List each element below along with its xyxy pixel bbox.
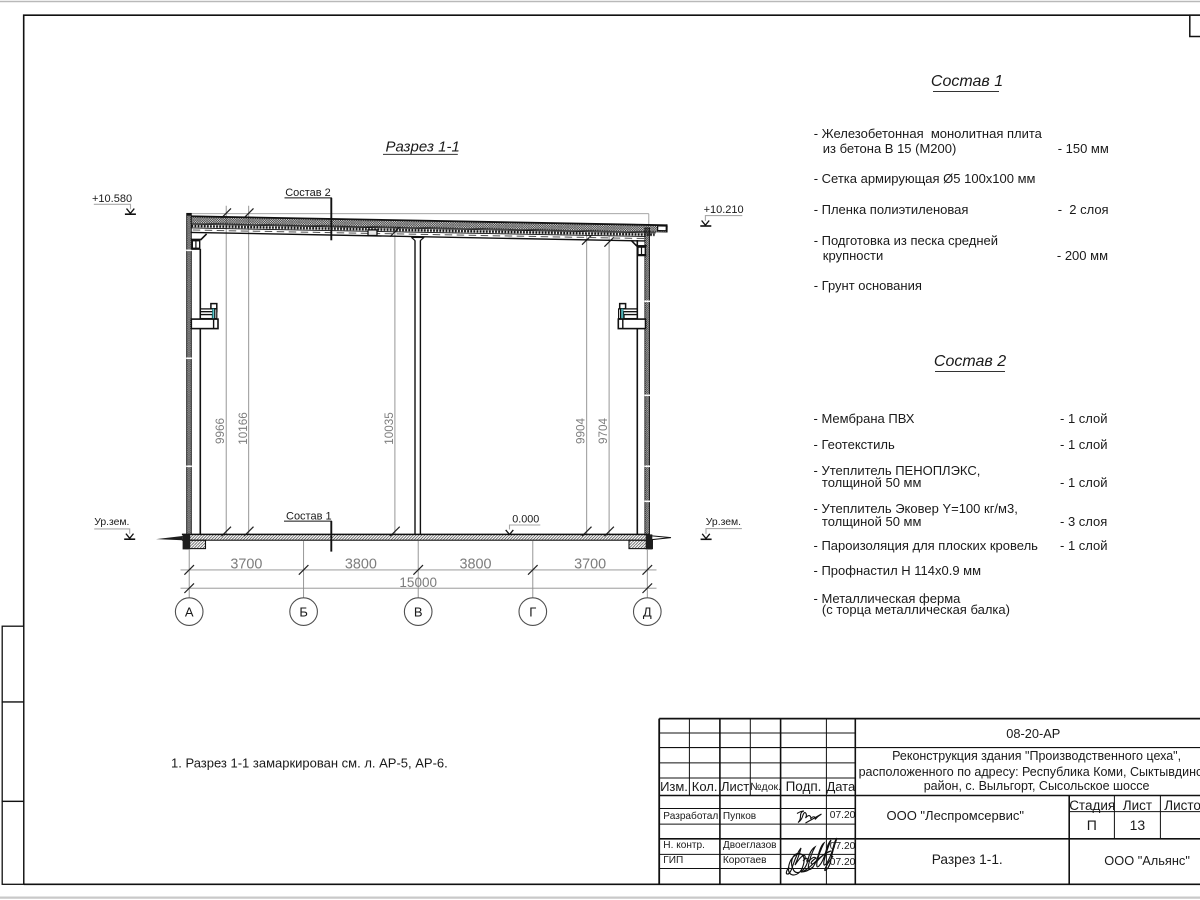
- svg-text:9966: 9966: [214, 418, 227, 444]
- svg-text:+10.210: +10.210: [704, 204, 744, 216]
- svg-text:10166: 10166: [237, 412, 250, 445]
- svg-text:Б: Б: [299, 604, 308, 619]
- svg-text:Д: Д: [643, 604, 652, 619]
- svg-text:3700: 3700: [230, 556, 262, 572]
- svg-text:Состав 2: Состав 2: [285, 187, 331, 199]
- svg-text:Разрез 1-1: Разрез 1-1: [386, 138, 460, 155]
- svg-text:15000: 15000: [399, 575, 437, 590]
- svg-text:3700: 3700: [574, 556, 606, 572]
- svg-text:10035: 10035: [383, 412, 396, 445]
- svg-text:Состав 1: Состав 1: [286, 510, 332, 522]
- svg-text:А: А: [185, 604, 194, 619]
- svg-text:0.000: 0.000: [512, 514, 539, 526]
- svg-text:Ур.зем.: Ур.зем.: [94, 517, 129, 528]
- svg-text:3800: 3800: [459, 556, 491, 572]
- svg-text:Ур.зем.: Ур.зем.: [706, 517, 741, 528]
- svg-text:3800: 3800: [345, 556, 377, 572]
- svg-text:В: В: [414, 604, 423, 619]
- svg-text:+10.580: +10.580: [92, 193, 132, 205]
- svg-text:Г: Г: [529, 604, 536, 619]
- svg-text:1. Разрез 1-1 замаркирован см.: 1. Разрез 1-1 замаркирован см. л. АР-5, …: [171, 756, 448, 771]
- svg-text:9904: 9904: [575, 418, 588, 445]
- svg-text:9704: 9704: [597, 418, 610, 445]
